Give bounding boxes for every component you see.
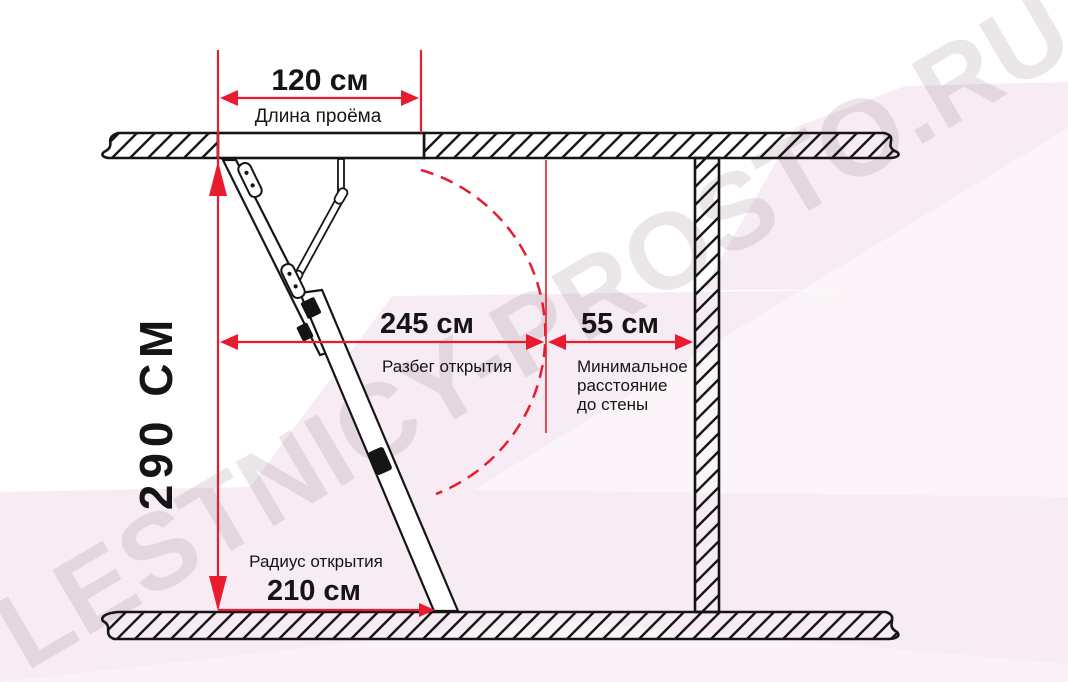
wall-column xyxy=(695,158,719,612)
wall-distance-label-line3: до стены xyxy=(577,395,648,414)
ceiling-slab-left xyxy=(102,133,218,158)
opening-length-label: Длина проёма xyxy=(255,106,382,127)
wall-distance-label-line2: расстояние xyxy=(577,376,668,395)
opening-radius-label: Радиус открытия xyxy=(249,552,383,571)
ceiling-slab-right xyxy=(424,133,899,158)
floor-slab xyxy=(102,612,898,639)
opening-length-value: 120 см xyxy=(271,64,368,97)
opening-radius-value: 210 см xyxy=(267,575,361,607)
attic-ladder-dimensions-diagram: LESTNICY-PROSTO.RU xyxy=(0,0,1068,682)
ceiling-opening-box xyxy=(218,133,424,158)
wall-distance-label-line1: Минимальное xyxy=(577,357,688,376)
ceiling-height-value: 290 СМ xyxy=(130,314,182,510)
opening-run-value: 245 см xyxy=(380,308,474,340)
opening-run-label: Разбег открытия xyxy=(382,357,512,376)
wall-distance-value: 55 см xyxy=(581,308,659,340)
